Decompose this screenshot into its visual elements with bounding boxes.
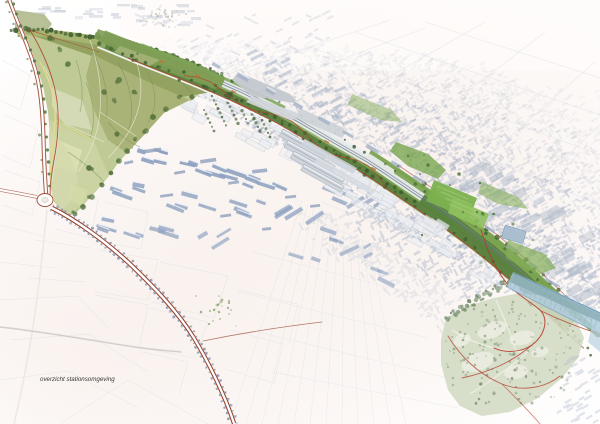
svg-text:overzicht stationsomgeving: overzicht stationsomgeving: [40, 376, 115, 383]
